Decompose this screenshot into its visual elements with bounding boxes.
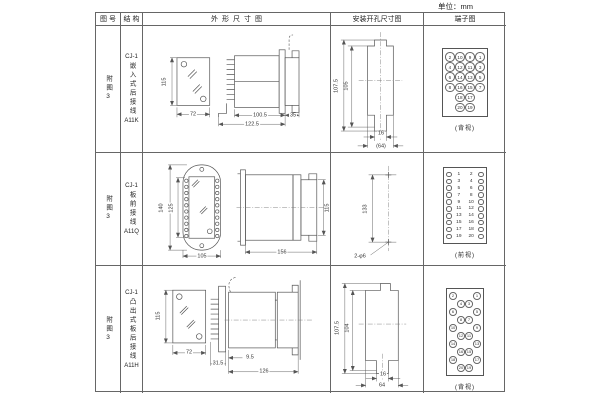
dim-front-height: 115 bbox=[156, 311, 162, 322]
structure-series: CJ-1 bbox=[125, 290, 138, 296]
terminal-grid: 2109141211361413581615718172019 bbox=[445, 52, 485, 113]
terminal-16: 16 bbox=[455, 83, 465, 93]
terminal-20: 20 bbox=[466, 234, 476, 239]
terminal-cell-a11h: 2143658710912111413161518172019 (背视) bbox=[424, 266, 506, 393]
terminal-9: 9 bbox=[473, 324, 481, 332]
dimension-table: 图号 结构 外形尺寸图 安装开孔尺寸图 端子图 附图3 CJ-1 嵌入式后接线 … bbox=[95, 12, 505, 392]
terminal-10: 10 bbox=[449, 324, 457, 332]
terminal-grid: 2143658710912111413161518172019 bbox=[449, 292, 481, 372]
dim-front-width: 72 bbox=[189, 112, 197, 118]
terminal-empty bbox=[457, 340, 465, 348]
terminal-row: 2019 bbox=[445, 102, 485, 112]
terminal-row: 1817 bbox=[449, 356, 481, 364]
dim-front-width: 72 bbox=[185, 350, 193, 356]
terminal-empty bbox=[445, 103, 455, 113]
install-cell-a11k: 107.5 105 16 (64) bbox=[331, 26, 424, 153]
terminal-row: 1920 bbox=[446, 233, 484, 240]
terminal-row: 910 bbox=[446, 199, 484, 206]
terminal-11: 11 bbox=[465, 62, 475, 72]
structure-cell: CJ-1 嵌入式后接线 A11K bbox=[121, 26, 143, 153]
terminal-16: 16 bbox=[466, 220, 476, 225]
terminal-empty bbox=[473, 332, 481, 340]
terminal-circle bbox=[446, 179, 452, 185]
terminal-circle bbox=[478, 227, 484, 233]
terminal-2: 2 bbox=[445, 52, 455, 62]
structure-cell: CJ-1 凸出式板后接线 A11H bbox=[121, 266, 143, 393]
header-structure: 结构 bbox=[121, 13, 143, 26]
terminal-empty bbox=[457, 308, 465, 316]
terminal-row: 1817 bbox=[445, 92, 485, 102]
terminal-row: 12 bbox=[446, 171, 484, 178]
install-cell-a11q: 133 2-φ6 bbox=[331, 153, 424, 266]
terminal-circle bbox=[478, 206, 484, 212]
terminal-row: 87 bbox=[449, 316, 481, 324]
terminal-17: 17 bbox=[465, 93, 475, 103]
terminal-14: 14 bbox=[466, 213, 476, 218]
dim-side-height: 115 bbox=[325, 203, 331, 214]
terminal-4: 4 bbox=[457, 300, 465, 308]
terminal-3: 3 bbox=[454, 179, 464, 184]
dim-bracket-depth: 31.5 bbox=[212, 361, 225, 367]
header-terminal: 端子图 bbox=[424, 13, 506, 26]
terminal-row: 1413 bbox=[449, 340, 481, 348]
terminal-16: 16 bbox=[457, 348, 465, 356]
terminal-10: 10 bbox=[455, 52, 465, 62]
terminal-1: 1 bbox=[473, 292, 481, 300]
terminal-row: 1516 bbox=[446, 219, 484, 226]
terminal-empty bbox=[465, 308, 473, 316]
terminal-circle bbox=[478, 220, 484, 226]
terminal-circle bbox=[446, 213, 452, 219]
terminal-7: 7 bbox=[475, 83, 485, 93]
terminal-8: 8 bbox=[457, 316, 465, 324]
figure-no: 附图3 bbox=[104, 316, 111, 344]
outline-cell-a11h: 115 72 31.5 9.5 126 bbox=[143, 266, 331, 393]
outline-drawing-a11h bbox=[143, 266, 330, 393]
terminal-row: 34 bbox=[446, 178, 484, 185]
terminal-4: 4 bbox=[466, 179, 476, 184]
terminal-empty bbox=[457, 324, 465, 332]
structure-desc: 嵌入式后接线 bbox=[128, 62, 135, 116]
terminal-row: 43 bbox=[449, 300, 481, 308]
terminal-19: 19 bbox=[465, 103, 475, 113]
dim-outer-height: 107.5 bbox=[334, 78, 340, 94]
terminal-6: 6 bbox=[466, 186, 476, 191]
terminal-row: 21 bbox=[449, 292, 481, 300]
terminal-empty bbox=[475, 103, 485, 113]
terminal-19: 19 bbox=[465, 364, 473, 372]
terminal-13: 13 bbox=[473, 340, 481, 348]
terminal-circle bbox=[478, 192, 484, 198]
outline-cell-a11k: 115 72 100.5 35 122.5 bbox=[143, 26, 331, 153]
terminal-row: 21091 bbox=[445, 52, 485, 62]
terminal-12: 12 bbox=[455, 62, 465, 72]
terminal-5: 5 bbox=[473, 308, 481, 316]
terminal-empty bbox=[465, 324, 473, 332]
terminal-3: 3 bbox=[465, 300, 473, 308]
terminal-8: 8 bbox=[466, 193, 476, 198]
terminal-circle bbox=[446, 206, 452, 212]
terminal-6: 6 bbox=[445, 72, 455, 82]
terminal-empty bbox=[445, 93, 455, 103]
terminal-5: 5 bbox=[475, 72, 485, 82]
terminal-14: 14 bbox=[455, 72, 465, 82]
install-drawing-a11q bbox=[331, 153, 423, 265]
figure-no-cell: 附图3 bbox=[96, 26, 121, 153]
terminal-19: 19 bbox=[454, 234, 464, 239]
dim-body-depth: 156 bbox=[276, 250, 287, 256]
figure-no-cell: 附图3 bbox=[96, 266, 121, 393]
structure-code: A11K bbox=[124, 118, 138, 124]
outline-drawing-a11k bbox=[143, 26, 330, 152]
terminal-11: 11 bbox=[454, 206, 464, 211]
terminal-1: 1 bbox=[454, 172, 464, 177]
structure-desc: 凸出式板后接线 bbox=[128, 298, 135, 361]
terminal-row: 56 bbox=[446, 185, 484, 192]
terminal-empty bbox=[473, 316, 481, 324]
terminal-row: 1112 bbox=[446, 205, 484, 212]
dim-holes: 2-φ6 bbox=[353, 254, 367, 260]
terminal-2: 2 bbox=[466, 172, 476, 177]
dim-body-depth: 100.5 bbox=[252, 113, 268, 119]
terminal-empty bbox=[465, 356, 473, 364]
terminal-row: 65 bbox=[449, 308, 481, 316]
dim-slot-width: 16 bbox=[377, 131, 385, 137]
terminal-empty bbox=[457, 292, 465, 300]
terminal-circle bbox=[446, 199, 452, 205]
terminal-row: 1211 bbox=[449, 332, 481, 340]
dim-body-depth: 126 bbox=[258, 369, 269, 375]
terminal-strip: 1234567891011121314151617181920 bbox=[446, 171, 484, 240]
terminal-circle bbox=[478, 179, 484, 185]
dim-window-height: 125 bbox=[169, 202, 175, 213]
terminal-row: 1615 bbox=[449, 348, 481, 356]
dim-inner-height: 105 bbox=[344, 80, 350, 91]
terminal-20: 20 bbox=[455, 103, 465, 113]
terminal-empty bbox=[449, 348, 457, 356]
terminal-circle bbox=[446, 172, 452, 178]
header-figure-no: 图号 bbox=[96, 13, 121, 26]
outline-cell-a11q: 140 125 105 156 115 bbox=[143, 153, 331, 266]
terminal-empty bbox=[473, 348, 481, 356]
dim-slot-width: 16 bbox=[379, 372, 387, 378]
terminal-circle bbox=[478, 213, 484, 219]
terminal-row: 2019 bbox=[449, 364, 481, 372]
dim-inner-height: 104 bbox=[345, 322, 351, 333]
terminal-box: 1234567891011121314151617181920 bbox=[443, 167, 487, 244]
terminal-17: 17 bbox=[473, 356, 481, 364]
terminal-circle bbox=[478, 172, 484, 178]
dim-front-height: 115 bbox=[162, 77, 168, 88]
terminal-row: 816157 bbox=[445, 82, 485, 92]
dim-gap-depth: 9.5 bbox=[245, 355, 255, 361]
terminal-view-label: (背视) bbox=[455, 123, 475, 132]
terminal-15: 15 bbox=[465, 348, 473, 356]
terminal-11: 11 bbox=[465, 332, 473, 340]
terminal-row: 78 bbox=[446, 192, 484, 199]
terminal-12: 12 bbox=[457, 332, 465, 340]
dim-overall-width: (64) bbox=[375, 144, 387, 150]
structure-desc: 板前接线 bbox=[128, 191, 135, 227]
terminal-10: 10 bbox=[466, 200, 476, 205]
terminal-circle bbox=[446, 192, 452, 198]
dim-overall-width: 64 bbox=[378, 383, 386, 389]
terminal-9: 9 bbox=[465, 52, 475, 62]
terminal-circle bbox=[446, 185, 452, 191]
terminal-8: 8 bbox=[445, 83, 455, 93]
structure-series: CJ-1 bbox=[125, 183, 138, 189]
terminal-row: 1718 bbox=[446, 226, 484, 233]
terminal-empty bbox=[449, 300, 457, 308]
terminal-5: 5 bbox=[454, 186, 464, 191]
terminal-15: 15 bbox=[454, 220, 464, 225]
terminal-9: 9 bbox=[454, 200, 464, 205]
figure-no: 附图3 bbox=[104, 75, 111, 103]
terminal-18: 18 bbox=[449, 356, 457, 364]
terminal-empty bbox=[449, 332, 457, 340]
dim-rear-depth: 35 bbox=[289, 113, 297, 119]
dim-front-width: 105 bbox=[196, 254, 207, 260]
install-cell-a11h: 107.5 104 16 64 bbox=[331, 266, 424, 393]
terminal-empty bbox=[457, 356, 465, 364]
terminal-view-label: (背视) bbox=[455, 382, 475, 391]
terminal-row: 614135 bbox=[445, 72, 485, 82]
terminal-2: 2 bbox=[449, 292, 457, 300]
terminal-circle bbox=[446, 234, 452, 240]
terminal-7: 7 bbox=[465, 316, 473, 324]
terminal-empty bbox=[473, 364, 481, 372]
terminal-13: 13 bbox=[465, 72, 475, 82]
terminal-12: 12 bbox=[466, 206, 476, 211]
terminal-empty bbox=[465, 340, 473, 348]
unit-label: 单位：mm bbox=[438, 1, 473, 12]
figure-no-cell: 附图3 bbox=[96, 153, 121, 266]
terminal-row: 1314 bbox=[446, 212, 484, 219]
terminal-20: 20 bbox=[457, 364, 465, 372]
terminal-14: 14 bbox=[449, 340, 457, 348]
figure-no: 附图3 bbox=[104, 195, 111, 223]
terminal-15: 15 bbox=[465, 83, 475, 93]
terminal-empty bbox=[449, 316, 457, 324]
dim-total-depth: 122.5 bbox=[244, 122, 260, 128]
dim-front-height: 140 bbox=[159, 202, 165, 213]
header-outline: 外形尺寸图 bbox=[143, 13, 331, 26]
terminal-7: 7 bbox=[454, 193, 464, 198]
terminal-row: 412113 bbox=[445, 62, 485, 72]
structure-cell: CJ-1 板前接线 A11Q bbox=[121, 153, 143, 266]
terminal-13: 13 bbox=[454, 213, 464, 218]
structure-code: A11Q bbox=[124, 229, 139, 235]
terminal-17: 17 bbox=[454, 227, 464, 232]
terminal-empty bbox=[465, 292, 473, 300]
header-install: 安装开孔尺寸图 bbox=[331, 13, 424, 26]
terminal-18: 18 bbox=[455, 93, 465, 103]
terminal-circle bbox=[478, 234, 484, 240]
manual-page: 单位：mm 图号 结构 外形尺寸图 安装开孔尺寸图 端子图 附图3 CJ-1 嵌… bbox=[0, 0, 600, 400]
terminal-empty bbox=[449, 364, 457, 372]
structure-series: CJ-1 bbox=[125, 54, 138, 60]
terminal-box: 2143658710912111413161518172019 bbox=[446, 288, 484, 376]
terminal-empty bbox=[473, 300, 481, 308]
terminal-6: 6 bbox=[449, 308, 457, 316]
terminal-box: 2109141211361413581615718172019 bbox=[442, 48, 488, 117]
terminal-4: 4 bbox=[445, 62, 455, 72]
dim-outer-height: 107.5 bbox=[335, 320, 341, 336]
terminal-empty bbox=[475, 93, 485, 103]
terminal-cell-a11k: 2109141211361413581615718172019 (背视) bbox=[424, 26, 506, 153]
terminal-view-label: (前视) bbox=[455, 250, 475, 259]
terminal-circle bbox=[446, 227, 452, 233]
terminal-row: 109 bbox=[449, 324, 481, 332]
terminal-1: 1 bbox=[475, 52, 485, 62]
terminal-18: 18 bbox=[466, 227, 476, 232]
dim-hole-spacing: 133 bbox=[363, 203, 369, 214]
terminal-cell-a11q: 1234567891011121314151617181920 (前视) bbox=[424, 153, 506, 266]
terminal-3: 3 bbox=[475, 62, 485, 72]
terminal-circle bbox=[478, 199, 484, 205]
terminal-circle bbox=[478, 185, 484, 191]
terminal-circle bbox=[446, 220, 452, 226]
structure-code: A11H bbox=[124, 363, 139, 369]
